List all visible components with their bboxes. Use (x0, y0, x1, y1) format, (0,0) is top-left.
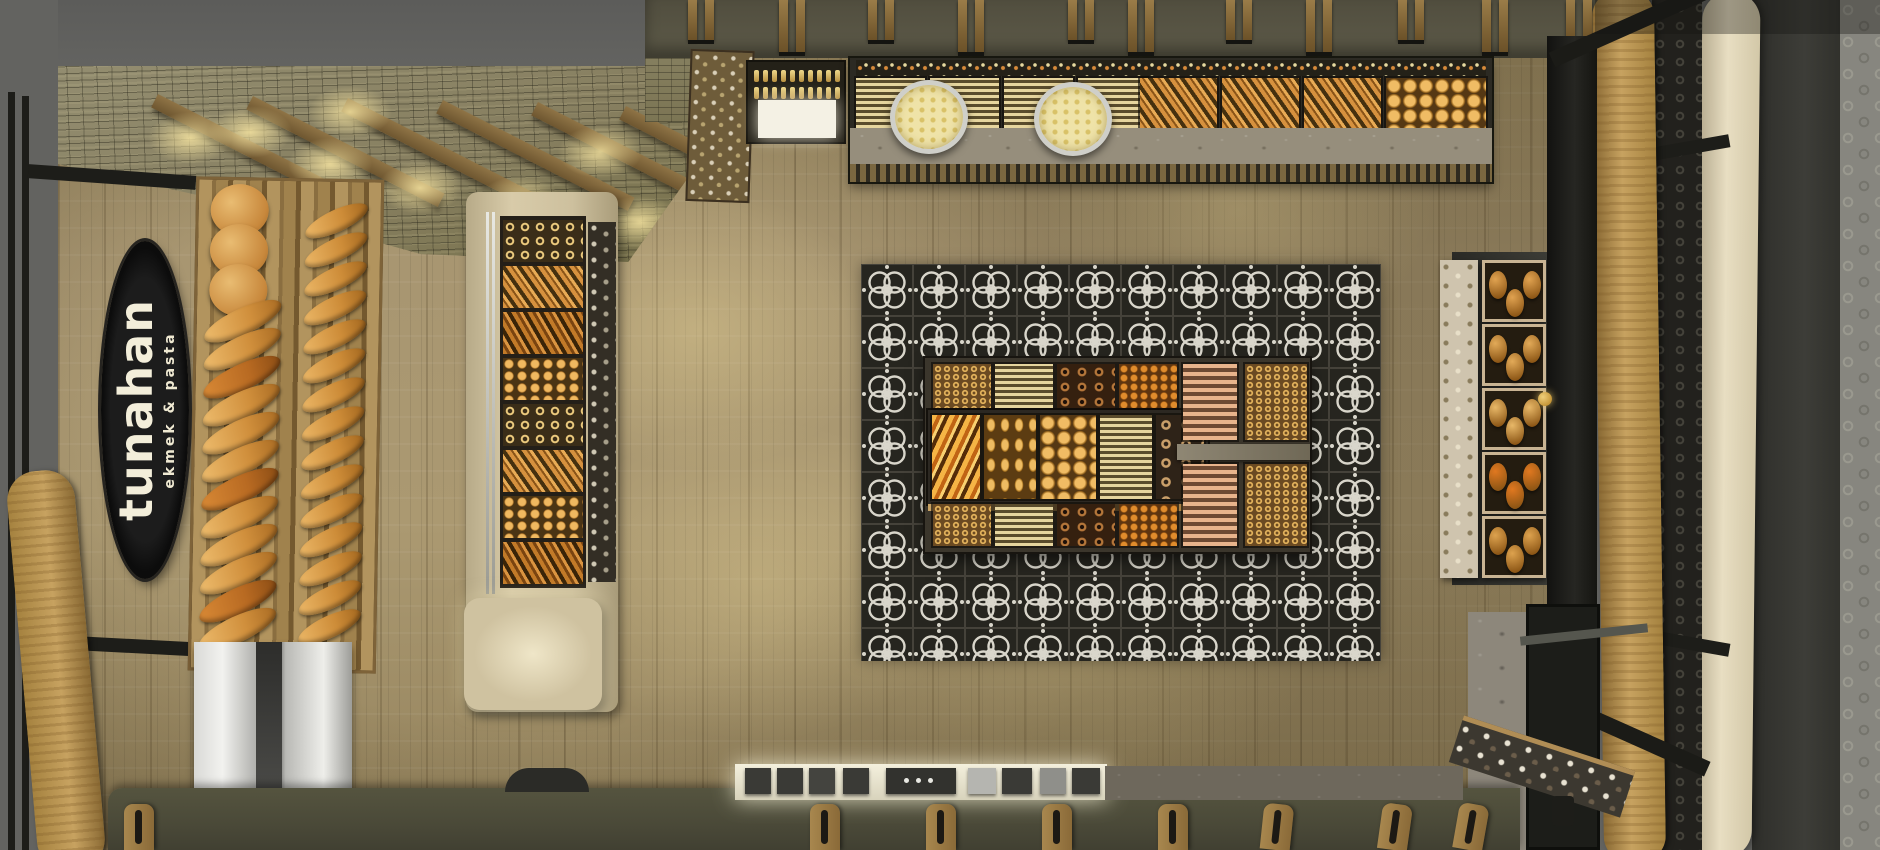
cubby-bread (1489, 463, 1507, 491)
slat (1226, 0, 1235, 40)
bottle (790, 70, 795, 82)
island-raised-platform (928, 410, 1208, 504)
espresso-machine (843, 768, 869, 794)
counter-sink-arc (505, 768, 589, 792)
machine-light (904, 778, 909, 783)
slat-bracket (1482, 52, 1508, 56)
slat (688, 0, 697, 40)
slat (1145, 0, 1154, 52)
bottle (763, 87, 768, 99)
espresso-machine (745, 768, 771, 794)
slat (1128, 0, 1137, 52)
slat-bracket (958, 52, 984, 56)
ceiling-spotlight-glow (148, 112, 232, 164)
base-divider (256, 642, 282, 792)
cubby-bread (1523, 335, 1541, 363)
frame-column-right (1547, 36, 1597, 700)
slat-bracket (868, 40, 894, 44)
case-section-glazed-croissants (503, 312, 583, 354)
island-right-tray-1 (1245, 464, 1307, 546)
ceiling-spotlight-glow (558, 126, 642, 178)
cubby-bread (1489, 271, 1507, 299)
hanging-slat-pair (1482, 0, 1508, 52)
case-section-buns (503, 358, 583, 400)
cubby-bread (1523, 271, 1541, 299)
bottle (799, 87, 804, 99)
bottle (754, 87, 759, 99)
bottle (799, 70, 804, 82)
espresso-machine (886, 768, 956, 794)
right-bread-cubby-rack (1482, 260, 1542, 580)
bottle (781, 70, 786, 82)
hanging-slat-pair (1128, 0, 1154, 52)
bottle (754, 70, 759, 82)
stool-back-slot (1389, 810, 1401, 845)
stool-back-slot (937, 810, 944, 844)
bottle (835, 70, 840, 82)
brand-sign-oval: tunahan ekmek & pasta (101, 241, 189, 579)
case-glass-rail (492, 212, 495, 594)
bottle (772, 87, 777, 99)
slat-bracket (1226, 40, 1252, 44)
island-tray-3 (1119, 364, 1177, 408)
slat (868, 0, 877, 40)
cubby-bread (1523, 399, 1541, 427)
stool-back (1377, 802, 1413, 850)
slat (958, 0, 967, 52)
island-tray-2 (1057, 364, 1115, 408)
frame-column-left-outer (8, 92, 15, 850)
back-counter-marble-top (1105, 766, 1463, 800)
slat (705, 0, 714, 40)
cubby-rolls (1482, 516, 1546, 578)
slat (1323, 0, 1332, 52)
slat (1306, 0, 1315, 52)
stool-back (1042, 804, 1072, 850)
bottle (826, 87, 831, 99)
stool-back-slot (135, 810, 142, 844)
slat (1243, 0, 1252, 40)
stool-back-slot (1464, 810, 1477, 845)
stool-back (926, 804, 956, 850)
top-right-shadow-band (1595, 0, 1880, 34)
island-center-tray-sesame-rolls (984, 415, 1036, 499)
brand-name: tunahan (113, 299, 159, 521)
island-right-tray-0 (1183, 364, 1237, 440)
machine-light (916, 778, 921, 783)
stool-back (810, 804, 840, 850)
hanging-slat-pair (1226, 0, 1252, 40)
stool-back-slot (1169, 810, 1176, 844)
cubby-bread (1506, 417, 1524, 445)
island-tray-1 (995, 504, 1053, 546)
machine-light (928, 778, 933, 783)
round-platter-dome (890, 80, 968, 154)
ceiling-spotlight-glow (308, 86, 392, 138)
stainless-base-cabinet (194, 642, 352, 792)
counter-slat-front (850, 164, 1492, 182)
slat (1566, 0, 1575, 40)
ceiling-spotlight-glow (378, 162, 462, 214)
slat (1398, 0, 1407, 40)
slat-bracket (1128, 52, 1154, 56)
cream-arc-band (1693, 0, 1760, 850)
case-glass-rail (486, 212, 489, 594)
cubby-bread (1489, 527, 1507, 555)
slat-bracket (1398, 40, 1424, 44)
island-tray-3 (1119, 504, 1177, 546)
slat (1085, 0, 1094, 40)
bottle (835, 87, 840, 99)
case-section-simit-rings (503, 404, 583, 446)
bottle (808, 70, 813, 82)
corner-goods-shelf (685, 49, 754, 203)
right-rack-side-shelf (1440, 260, 1478, 578)
island-right-tray-1 (1245, 364, 1307, 440)
cubby-bread (1489, 399, 1507, 427)
round-platter-dome (1034, 82, 1112, 156)
island-center-tray-round-buns (1040, 415, 1096, 499)
cubby-bread (1506, 289, 1524, 317)
bakery-topdown-render: tunahan ekmek & pasta (0, 0, 1880, 850)
cubby-glazed-orange-pastries (1482, 452, 1546, 514)
bottle (808, 87, 813, 99)
counter-bread-tray (1304, 78, 1381, 128)
case-lit-end-cap (464, 598, 602, 710)
slat (779, 0, 788, 52)
island-tray-2 (1057, 504, 1115, 546)
slat (1499, 0, 1508, 52)
slat-bracket (688, 40, 714, 44)
slat (796, 0, 805, 52)
case-section-buns (503, 496, 583, 538)
slat (1068, 0, 1077, 40)
case-section-simit-rings (503, 220, 583, 262)
hanging-slat-pair (958, 0, 984, 52)
hanging-slat-pair (779, 0, 805, 52)
hanging-slat-pair (688, 0, 714, 40)
stool-back-slot (821, 810, 828, 844)
bottle (763, 70, 768, 82)
hanging-slat-pair (868, 0, 894, 40)
stool-back-slot (1053, 810, 1060, 844)
bottle (772, 70, 777, 82)
left-bread-rack (188, 176, 385, 673)
bottle (781, 87, 786, 99)
island-tray-0 (933, 364, 991, 408)
slat-bracket (779, 52, 805, 56)
cubby-bread (1506, 545, 1524, 573)
cubby-bread (1523, 463, 1541, 491)
case-side-shelf (588, 222, 616, 582)
slat (975, 0, 984, 52)
island-right-tray-0 (1183, 464, 1237, 546)
island-center-tray-croissants (932, 415, 980, 499)
slat-bracket (1306, 52, 1332, 56)
espresso-machine (968, 768, 996, 794)
island-center-tray-cream-cookies (1100, 415, 1152, 499)
patterned-wall-right (1838, 0, 1880, 850)
bottle (826, 70, 831, 82)
counter-platter-section (1386, 78, 1486, 128)
bottle (817, 87, 822, 99)
bottle (817, 70, 822, 82)
wall-socket (1552, 796, 1574, 826)
slat (1415, 0, 1424, 40)
espresso-machine (1040, 768, 1066, 794)
island-tray-0 (933, 504, 991, 546)
island-stone-bridge (1177, 444, 1310, 460)
island-tray-1 (995, 364, 1053, 408)
cubby-bread (1489, 335, 1507, 363)
center-pastry-island (925, 358, 1310, 552)
cooler-lit-shelf (758, 100, 836, 138)
case-interior (500, 216, 586, 588)
counter-bread-tray (1222, 78, 1299, 128)
espresso-machine (777, 768, 803, 794)
stool-back-slot (1271, 810, 1282, 845)
espresso-machine (809, 768, 835, 794)
case-section-croissants (503, 450, 583, 492)
cubby-rolls (1482, 260, 1546, 322)
case-section-glazed-croissants (503, 542, 583, 584)
cubby-bread (1506, 353, 1524, 381)
cubby-bread (1506, 481, 1524, 509)
counter-top-goods-rail (856, 60, 1486, 76)
hanging-slat-pair (1398, 0, 1424, 40)
stool-back (1158, 804, 1188, 850)
charcoal-band-right (1752, 0, 1840, 850)
pendant-lamp (1538, 392, 1552, 406)
slat (885, 0, 894, 40)
stool-back (124, 804, 154, 850)
cubby-round-buns (1482, 324, 1546, 386)
slat (1482, 0, 1491, 52)
ceiling-void (58, 0, 648, 72)
brand-tagline: ekmek & pasta (162, 331, 178, 488)
cubby-bread (1523, 527, 1541, 555)
cubby-baguette-halves (1482, 388, 1546, 450)
counter-bread-tray (1140, 78, 1217, 128)
hanging-slat-pair (1306, 0, 1332, 52)
slat-bracket (1068, 40, 1094, 44)
bottle (790, 87, 795, 99)
espresso-machine (1002, 768, 1032, 794)
case-section-croissants (503, 266, 583, 308)
hanging-slat-pair (1068, 0, 1094, 40)
espresso-machine (1072, 768, 1100, 794)
stool-back (1260, 803, 1295, 850)
